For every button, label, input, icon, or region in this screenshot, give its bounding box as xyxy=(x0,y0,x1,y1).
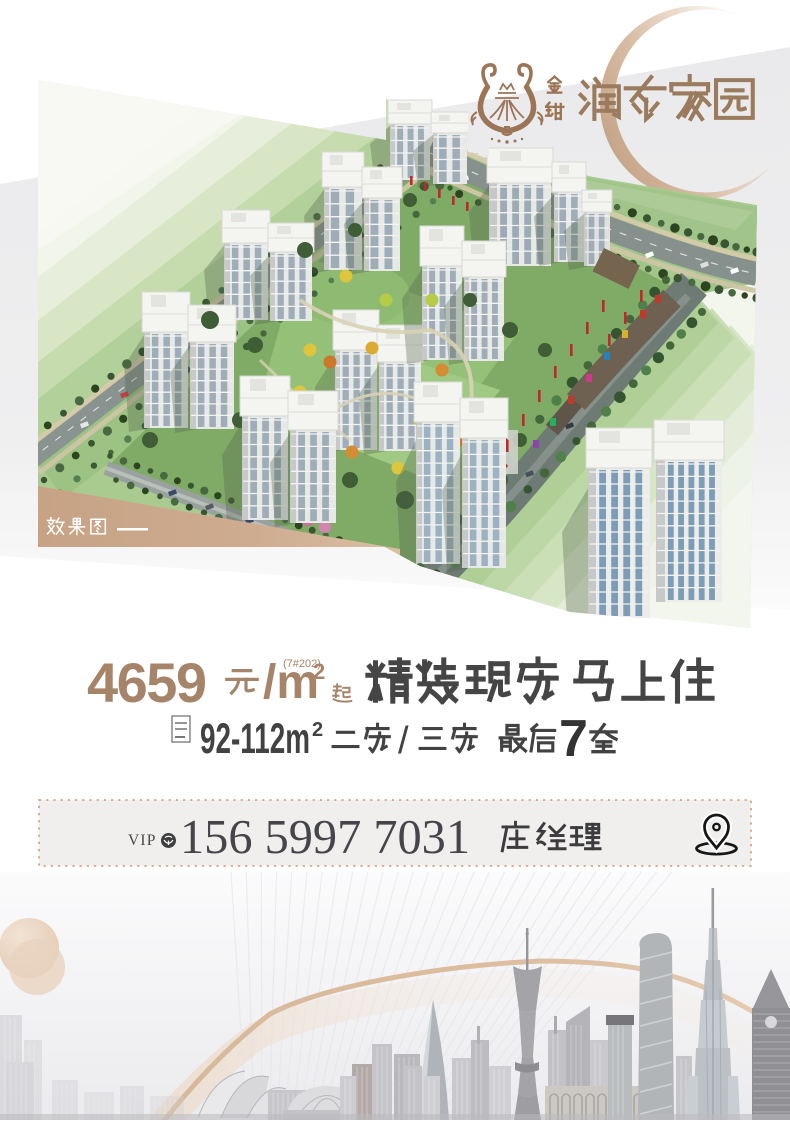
svg-text:VIP: VIP xyxy=(128,832,157,849)
svg-text:(7#202): (7#202) xyxy=(283,658,321,670)
svg-text:2: 2 xyxy=(312,719,323,741)
svg-text:4659: 4659 xyxy=(87,651,206,714)
svg-text:/: / xyxy=(398,720,409,762)
svg-text:7: 7 xyxy=(559,710,588,768)
svg-text:156 5997 7031: 156 5997 7031 xyxy=(180,809,470,864)
svg-text:92-112m: 92-112m xyxy=(200,715,310,763)
